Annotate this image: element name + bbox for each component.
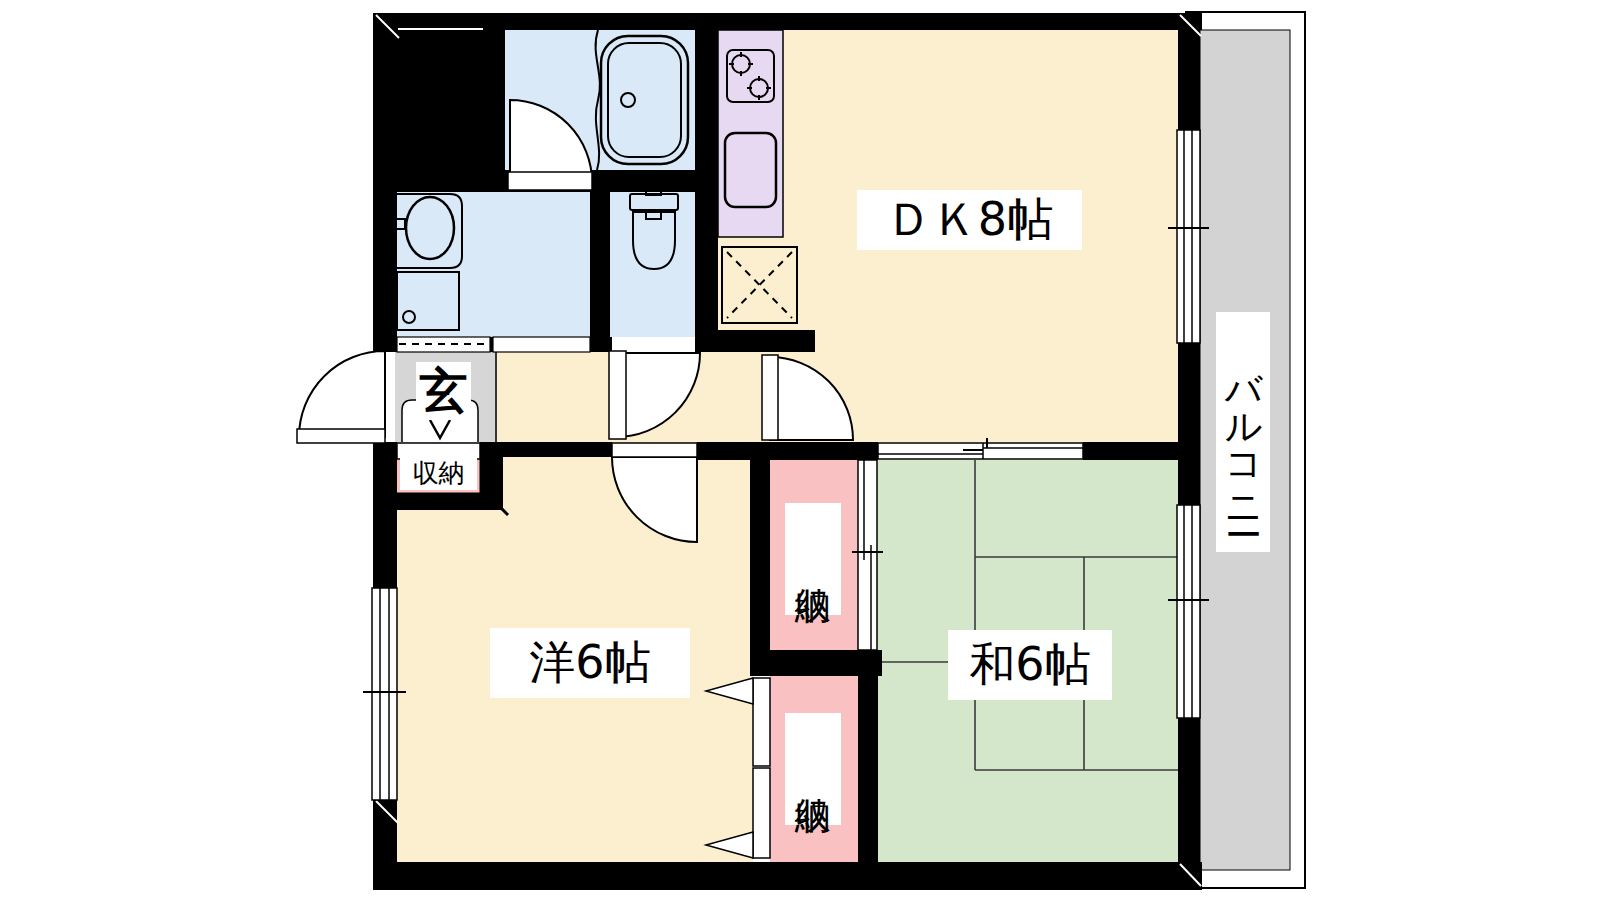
dk-room-label: ＤＫ8帖	[857, 190, 1082, 250]
wall-stub	[590, 337, 612, 352]
entrance-closet-door	[397, 443, 480, 459]
wall-closet-west	[750, 460, 770, 650]
door-leaf	[612, 443, 697, 457]
folding-panel	[753, 678, 770, 766]
accordion-door-washroom	[397, 337, 490, 352]
wall-dk-japanese	[1083, 442, 1178, 460]
entrance-door	[297, 351, 385, 443]
wall-top	[373, 13, 1202, 30]
door-leaf	[762, 355, 778, 440]
sliding-panel-band	[858, 460, 877, 650]
washroom-floor	[395, 192, 590, 337]
wall-right-lower	[1178, 718, 1200, 864]
door-leaf	[609, 351, 626, 439]
western-room-label: 洋6帖	[490, 628, 690, 698]
toilet-floor	[610, 192, 698, 337]
wall-wash-toilet	[590, 192, 610, 337]
door-leaf	[508, 172, 592, 190]
japanese-closet-label: 収納	[785, 503, 841, 615]
entrance-closet-label: 収納	[400, 458, 477, 490]
window-frame	[1177, 130, 1200, 343]
door-swing	[299, 351, 385, 437]
wall-closet-mid	[750, 650, 882, 676]
wall-left-upper	[373, 13, 397, 352]
entrance-label: 玄	[416, 362, 471, 420]
kitchen-counter	[718, 30, 783, 237]
door-leaf	[297, 429, 385, 443]
washroom-hall-opening	[493, 337, 590, 352]
wall-left-mid	[373, 442, 397, 588]
wall-bottom	[373, 862, 1202, 890]
wall-right-mid	[1178, 343, 1200, 505]
window-frame	[1177, 505, 1200, 718]
western-closet-label: 収納	[785, 713, 841, 825]
wall-dk-south	[697, 442, 878, 460]
wall-japanese-west	[858, 676, 878, 862]
window-frame	[372, 588, 397, 800]
wall-kitchen-west	[695, 30, 718, 352]
japanese-room-label: 和6帖	[948, 630, 1112, 700]
balcony-label: バルコニー	[1216, 312, 1270, 552]
wall-right-upper	[1178, 30, 1200, 130]
wall-hall-dk	[718, 330, 815, 352]
floor-plan: ＤＫ8帖 洋6帖 和6帖 バルコニー 玄 収納 収納 収納	[0, 0, 1600, 900]
wall-closet-south	[373, 493, 503, 510]
folding-panel	[753, 768, 770, 858]
